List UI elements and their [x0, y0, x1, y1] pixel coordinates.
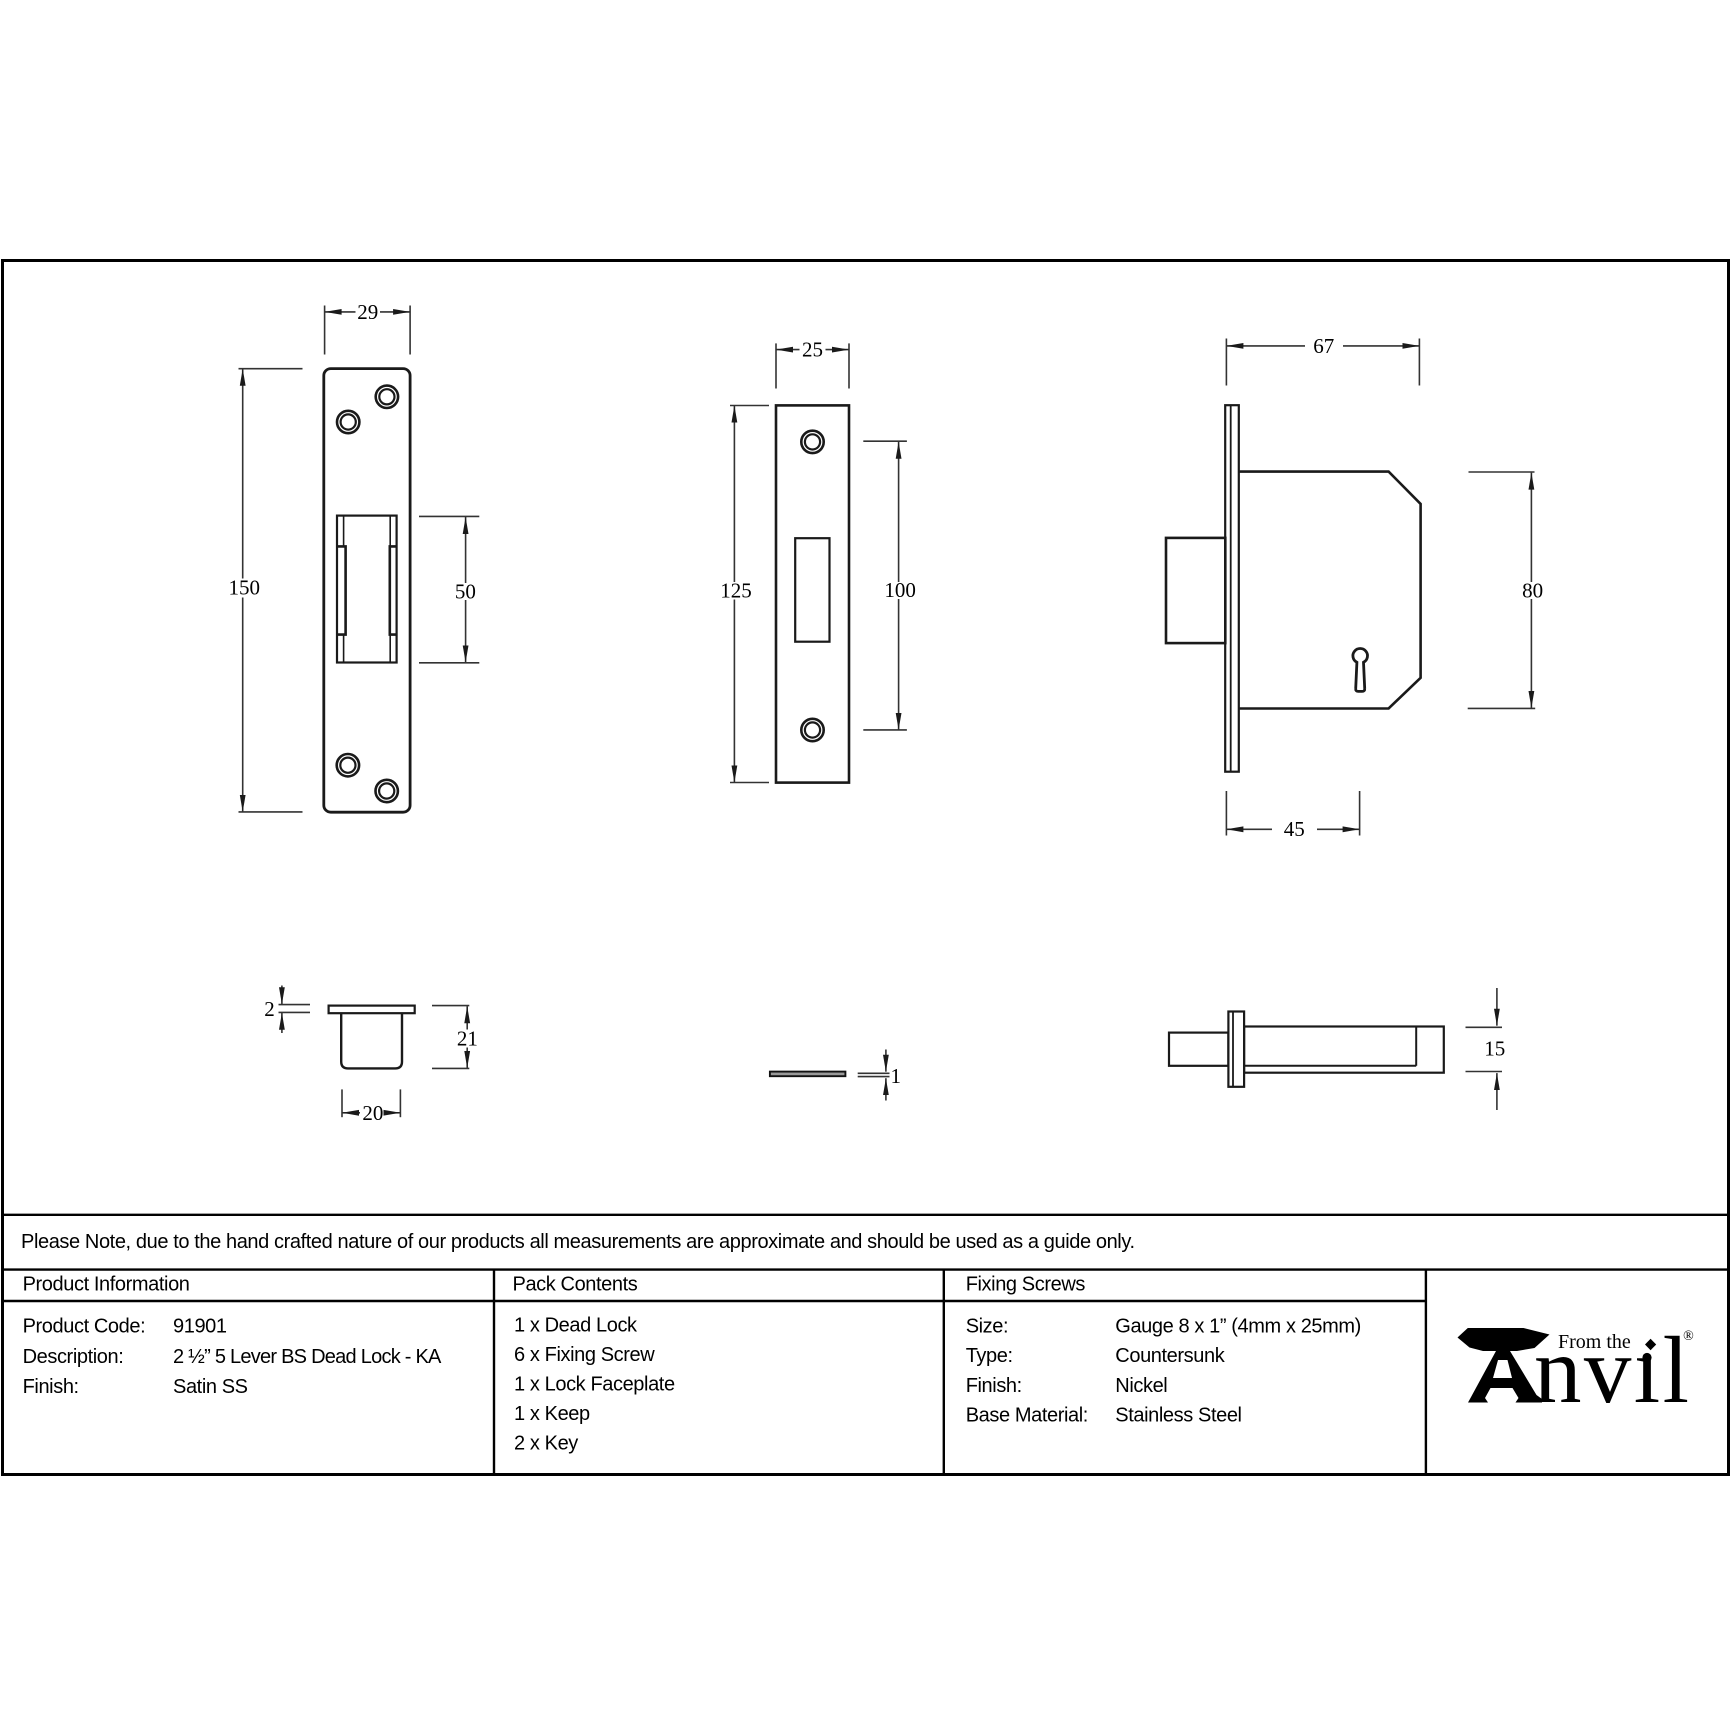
svg-text:®: ® [1683, 1329, 1694, 1344]
svg-text:Product Information: Product Information [23, 1274, 190, 1296]
svg-text:Nickel: Nickel [1115, 1375, 1167, 1397]
svg-text:1: 1 [890, 1064, 901, 1088]
svg-text:80: 80 [1522, 578, 1543, 602]
svg-text:Finish:: Finish: [966, 1375, 1022, 1397]
svg-text:1 x Dead Lock: 1 x Dead Lock [514, 1315, 638, 1337]
svg-text:2: 2 [264, 997, 275, 1021]
svg-text:Size:: Size: [966, 1315, 1008, 1337]
svg-text:Gauge 8 x 1” (4mm x 25mm): Gauge 8 x 1” (4mm x 25mm) [1115, 1315, 1361, 1337]
svg-text:Stainless Steel: Stainless Steel [1115, 1405, 1241, 1427]
svg-text:29: 29 [357, 300, 378, 324]
svg-text:45: 45 [1284, 817, 1305, 841]
svg-text:20: 20 [362, 1101, 383, 1125]
svg-text:125: 125 [720, 579, 752, 603]
svg-text:2 x Key: 2 x Key [514, 1433, 578, 1455]
svg-text:Product Code:: Product Code: [23, 1316, 146, 1338]
svg-text:Please Note, due to the hand c: Please Note, due to the hand crafted nat… [21, 1231, 1135, 1253]
svg-text:21: 21 [457, 1027, 478, 1051]
svg-text:2 ½” 5 Lever BS Dead Lock - KA: 2 ½” 5 Lever BS Dead Lock - KA [173, 1346, 442, 1368]
svg-text:From the: From the [1558, 1331, 1631, 1353]
svg-text:91901: 91901 [173, 1316, 227, 1338]
svg-text:1 x Keep: 1 x Keep [514, 1403, 590, 1425]
svg-text:Satin SS: Satin SS [173, 1376, 248, 1398]
svg-text:100: 100 [884, 578, 916, 602]
svg-text:15: 15 [1484, 1036, 1505, 1060]
svg-text:Type:: Type: [966, 1345, 1013, 1367]
svg-text:Description:: Description: [23, 1346, 124, 1368]
svg-text:Fixing Screws: Fixing Screws [966, 1274, 1086, 1296]
svg-text:1 x Lock Faceplate: 1 x Lock Faceplate [514, 1374, 675, 1396]
svg-text:6 x Fixing Screw: 6 x Fixing Screw [514, 1344, 655, 1366]
svg-text:Base Material:: Base Material: [966, 1405, 1088, 1427]
svg-text:67: 67 [1313, 334, 1334, 358]
svg-text:Countersunk: Countersunk [1115, 1345, 1225, 1367]
svg-text:50: 50 [455, 580, 476, 604]
svg-text:150: 150 [228, 576, 260, 600]
svg-text:25: 25 [802, 338, 823, 362]
svg-text:Pack Contents: Pack Contents [513, 1274, 638, 1296]
svg-text:Finish:: Finish: [23, 1376, 79, 1398]
